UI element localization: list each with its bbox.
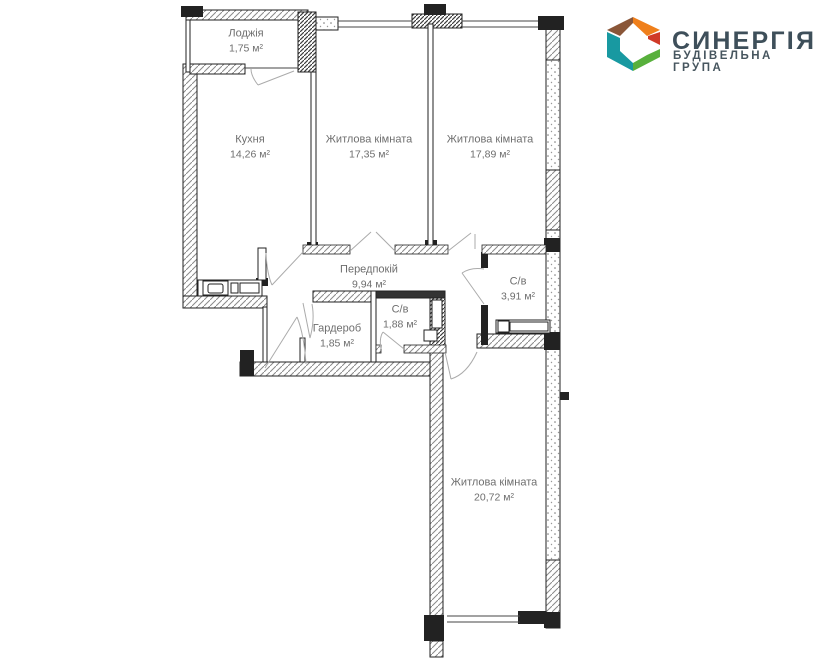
bathroom2-fixture xyxy=(432,300,442,328)
room-area: 14,26 м² xyxy=(230,147,270,161)
room-label-loggia: Лоджія 1,75 м² xyxy=(228,26,263,55)
room-area: 1,88 м² xyxy=(383,317,417,331)
doors-layer xyxy=(251,69,484,379)
room-label-bathroom-2: С/в 1,88 м² xyxy=(383,302,417,331)
room-label-living-1: Житлова кімната 17,35 м² xyxy=(326,132,412,161)
floor-plan-page: Лоджія 1,75 м² Кухня 14,26 м² Житлова кі… xyxy=(0,0,826,659)
room-area: 3,91 м² xyxy=(501,289,535,303)
room-area: 20,72 м² xyxy=(451,490,537,504)
room-name: Житлова кімната xyxy=(451,475,537,490)
logo: СИНЕРГІЯ БУДІВЕЛЬНА ГРУПА xyxy=(603,14,826,78)
logo-cube-icon xyxy=(603,15,665,75)
room-name: С/в xyxy=(383,302,417,317)
room-label-kitchen: Кухня 14,26 м² xyxy=(230,132,270,161)
room-name: Житлова кімната xyxy=(326,132,412,147)
kitchen-stove xyxy=(240,283,259,293)
room-area: 9,94 м² xyxy=(340,277,398,291)
room-label-wardrobe: Гардероб 1,85 м² xyxy=(313,321,361,350)
room-area: 1,85 м² xyxy=(313,336,361,350)
logo-tagline-text: БУДІВЕЛЬНА ГРУПА xyxy=(673,50,826,74)
bathroom2-toilet xyxy=(424,330,437,341)
room-label-hallway: Передпокій 9,94 м² xyxy=(340,262,398,291)
room-area: 1,75 м² xyxy=(228,41,263,55)
room-name: С/в xyxy=(501,274,535,289)
room-area: 17,89 м² xyxy=(447,147,533,161)
room-name: Кухня xyxy=(230,132,270,147)
room-name: Лоджія xyxy=(228,26,263,41)
room-name: Передпокій xyxy=(340,262,398,277)
room-label-living-2: Житлова кімната 17,89 м² xyxy=(447,132,533,161)
room-name: Гардероб xyxy=(313,321,361,336)
room-name: Житлова кімната xyxy=(447,132,533,147)
room-label-bathroom-1: С/в 3,91 м² xyxy=(501,274,535,303)
room-area: 17,35 м² xyxy=(326,147,412,161)
room-label-living-3: Житлова кімната 20,72 м² xyxy=(451,475,537,504)
